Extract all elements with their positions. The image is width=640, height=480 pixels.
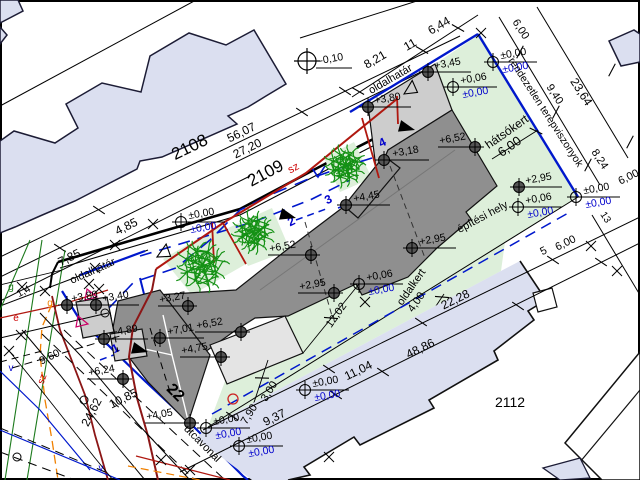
svg-text:v: v [99,463,104,474]
svg-text:v: v [9,363,14,374]
svg-text:g: g [8,282,14,293]
svg-text:e: e [13,313,19,324]
svg-text:g: g [47,298,53,309]
svg-text:2112: 2112 [495,394,525,410]
